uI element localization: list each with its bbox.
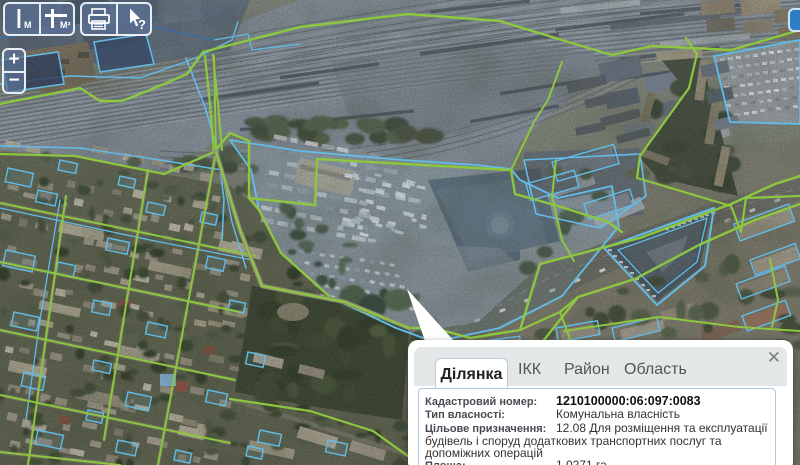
svg-text:M: M: [24, 20, 32, 30]
svg-text:M²: M²: [60, 20, 71, 30]
svg-text:?: ?: [138, 17, 146, 31]
